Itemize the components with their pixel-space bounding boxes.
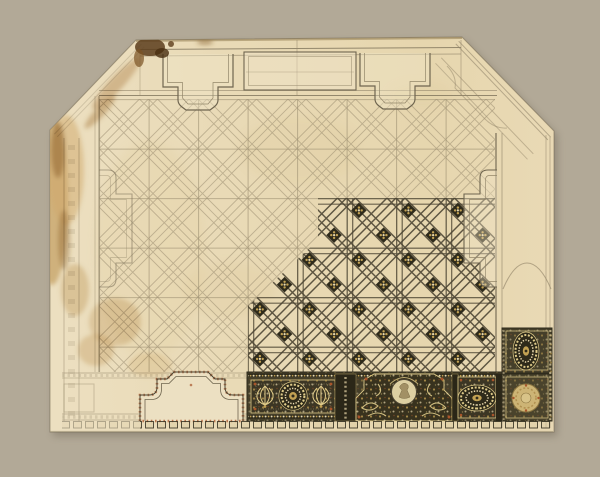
frieze-panel-right: [458, 377, 496, 418]
oval-patera: [458, 385, 496, 411]
dentil-cornice: [50, 421, 553, 431]
museum-photo: [0, 0, 600, 477]
frieze-centre-shield: [356, 374, 452, 421]
pale-gold-medallion: [512, 384, 540, 412]
frieze-panel-left: [251, 380, 335, 413]
top-centre-panel: [244, 52, 356, 90]
gilt-rosette: [279, 382, 308, 411]
artwork-canvas: [0, 0, 600, 477]
corner-square: [502, 374, 552, 421]
oval-patera: [513, 332, 539, 370]
right-border-band: [502, 328, 552, 373]
